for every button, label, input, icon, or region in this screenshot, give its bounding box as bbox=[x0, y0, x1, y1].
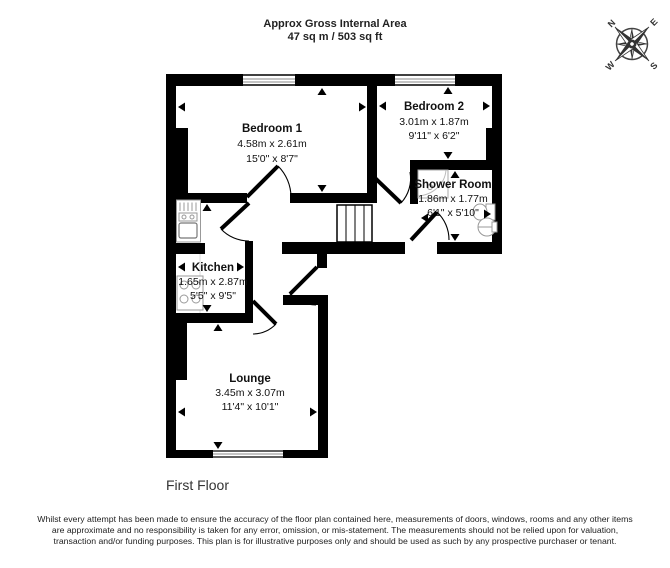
door-landing bbox=[375, 172, 411, 203]
room-name: Kitchen bbox=[192, 262, 234, 274]
wall bbox=[410, 160, 502, 170]
dimension-arrow bbox=[203, 305, 212, 312]
room-metric: 1.65m x 2.87m bbox=[178, 276, 248, 288]
room-name: Shower Room bbox=[414, 179, 491, 191]
wall bbox=[317, 254, 327, 268]
kitchen-sink-icon bbox=[177, 200, 201, 242]
room-label-lounge: Lounge 3.45m x 3.07m 11'4" x 10'1" bbox=[215, 373, 285, 413]
room-imperial: 11'4" x 10'1" bbox=[222, 401, 279, 413]
wall bbox=[367, 74, 377, 195]
room-metric: 4.58m x 2.61m bbox=[237, 138, 307, 150]
disclaimer-text: Whilst every attempt has been made to en… bbox=[32, 514, 638, 547]
room-labels: Bedroom 1 4.58m x 2.61m 15'0" x 8'7" Bed… bbox=[178, 101, 491, 413]
dimension-arrow bbox=[310, 408, 317, 417]
wall bbox=[283, 295, 318, 305]
door-kitchen bbox=[221, 203, 249, 241]
floorplan-page: Approx Gross Internal Area 47 sq m / 503… bbox=[0, 0, 670, 568]
room-imperial: 5'5" x 9'5" bbox=[190, 290, 236, 302]
room-imperial: 15'0" x 8'7" bbox=[246, 153, 298, 165]
room-label-bedroom2: Bedroom 2 3.01m x 1.87m 9'11" x 6'2" bbox=[399, 101, 469, 142]
compass-w-label: W bbox=[604, 59, 617, 72]
compass-rose-icon: N E S W bbox=[583, 0, 670, 94]
floorplan-drawing: Bedroom 1 4.58m x 2.61m 15'0" x 8'7" Bed… bbox=[0, 0, 670, 568]
room-label-bedroom1: Bedroom 1 4.58m x 2.61m 15'0" x 8'7" bbox=[237, 123, 307, 165]
stairs bbox=[337, 205, 372, 242]
dimension-arrow bbox=[451, 234, 460, 241]
wall bbox=[283, 450, 328, 458]
dimension-arrow bbox=[444, 152, 453, 159]
room-metric: 3.45m x 3.07m bbox=[215, 387, 285, 399]
dimension-arrow bbox=[214, 324, 223, 331]
wall bbox=[166, 313, 248, 323]
dimension-arrow bbox=[178, 408, 185, 417]
dimension-arrow bbox=[483, 102, 490, 111]
door-lounge bbox=[253, 301, 276, 334]
floor-label: First Floor bbox=[166, 477, 229, 493]
compass-s-label: S bbox=[648, 60, 659, 71]
room-metric: 1.86m x 1.77m bbox=[418, 193, 488, 205]
room-name: Bedroom 2 bbox=[404, 101, 464, 113]
dimension-arrow bbox=[318, 88, 327, 95]
dimension-arrow bbox=[214, 442, 223, 449]
wall bbox=[166, 243, 205, 254]
room-imperial: 6'1" x 5'10" bbox=[427, 207, 479, 219]
wall bbox=[318, 295, 328, 458]
dimension-arrow bbox=[178, 103, 185, 112]
room-name: Lounge bbox=[229, 373, 271, 385]
dimension-arrow bbox=[444, 87, 453, 94]
window-bedroom1 bbox=[243, 74, 295, 86]
room-imperial: 9'11" x 6'2" bbox=[409, 130, 460, 142]
dimension-arrow bbox=[178, 263, 185, 272]
dimension-arrow bbox=[359, 103, 366, 112]
dimension-arrow bbox=[237, 263, 244, 272]
door-bedroom1 bbox=[247, 166, 291, 197]
dimension-arrow bbox=[451, 171, 460, 178]
dimension-arrow bbox=[318, 185, 327, 192]
dimension-arrow bbox=[379, 102, 386, 111]
window-lounge bbox=[213, 450, 283, 458]
dimension-arrow bbox=[203, 204, 212, 211]
wall bbox=[282, 242, 405, 254]
wall bbox=[166, 450, 213, 458]
window-bedroom2 bbox=[395, 74, 455, 86]
wall bbox=[166, 128, 188, 202]
wall bbox=[166, 323, 187, 380]
compass-e-label: E bbox=[648, 16, 659, 27]
room-name: Bedroom 1 bbox=[242, 123, 303, 135]
wall bbox=[437, 242, 502, 254]
wall bbox=[290, 193, 377, 203]
room-metric: 3.01m x 1.87m bbox=[399, 116, 469, 128]
